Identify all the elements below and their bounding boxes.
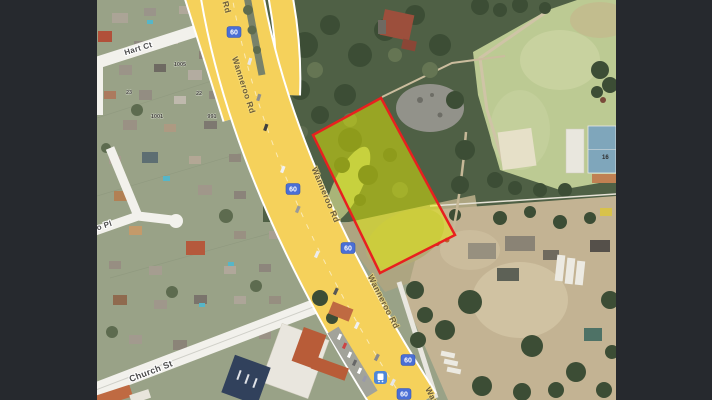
route-60-shield-4: 60 [401, 355, 415, 366]
house-number-1001: 1001 [151, 114, 163, 120]
orange-roof-strip [592, 174, 616, 183]
aerial-map-image[interactable]: 16 [0, 0, 712, 400]
svg-text:60: 60 [289, 187, 297, 194]
court-number-label: 16 [602, 155, 609, 161]
house-number-22: 22 [196, 91, 202, 97]
svg-text:60: 60 [400, 392, 408, 399]
house-number-991: 991 [207, 114, 216, 120]
route-60-shield-5: 60 [397, 389, 411, 400]
cricket-pitch [498, 128, 537, 170]
map-canvas[interactable]: 16 [93, 0, 630, 400]
bus-stop-icon [374, 371, 387, 384]
tennis-court [588, 126, 616, 173]
svg-text:60: 60 [404, 358, 412, 365]
clubhouse-roof [566, 129, 584, 173]
route-60-shield-3: 60 [341, 243, 355, 254]
svg-text:60: 60 [344, 246, 352, 253]
house-number-23: 23 [126, 90, 132, 96]
house-number-1005: 1005 [174, 62, 186, 68]
route-60-shield-1: 60 [227, 27, 241, 38]
svg-text:60: 60 [230, 30, 238, 37]
route-60-shield-2: 60 [286, 184, 300, 195]
